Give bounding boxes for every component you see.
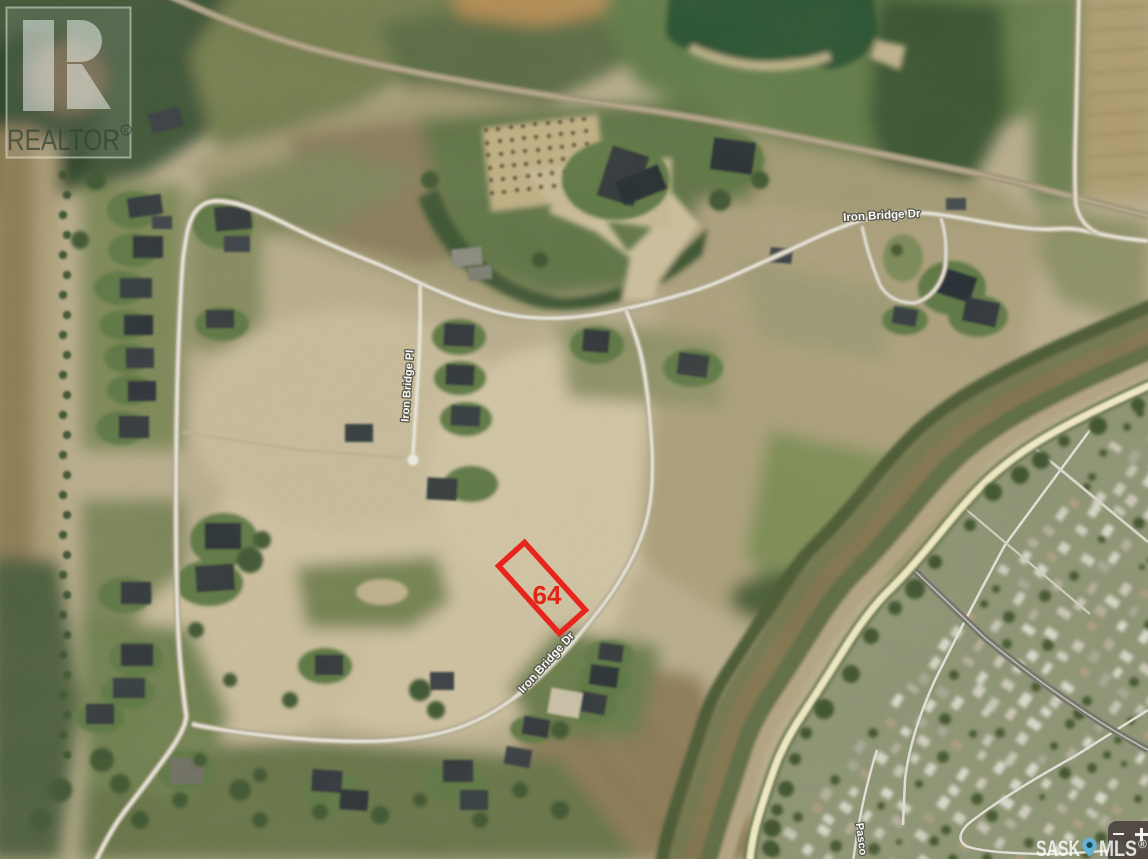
svg-text:REALTOR: REALTOR [7, 124, 120, 157]
svg-text:64: 64 [533, 580, 562, 610]
svg-text:R: R [123, 129, 128, 136]
svg-text:MLS: MLS [1099, 836, 1137, 859]
svg-text:®: ® [1138, 837, 1147, 851]
svg-text:SASK: SASK [1036, 836, 1080, 859]
